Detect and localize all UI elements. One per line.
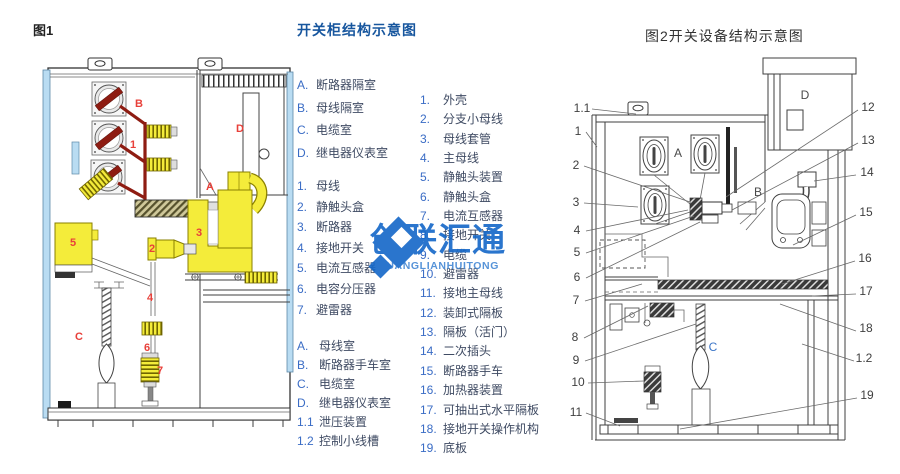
item-text: 控制小线槽: [319, 432, 379, 449]
item-marker: A.: [297, 339, 319, 353]
list-item: 5.电流互感器: [297, 259, 376, 280]
item-marker: B.: [297, 358, 319, 372]
list-item: B.母线隔室: [297, 99, 388, 122]
coil-end-cap: [171, 160, 177, 169]
fig2-cable-assembly: [610, 300, 814, 425]
item-text: 断路器隔室: [316, 76, 376, 93]
list-item: 3.断路器: [297, 218, 376, 239]
item-marker: 16.: [420, 383, 443, 397]
list-item: 18.接地开关操作机构: [420, 420, 539, 439]
list-item: 7.避雷器: [297, 301, 376, 322]
item-marker: C.: [297, 123, 316, 137]
fig2-label-room-a: A: [674, 146, 682, 160]
fig2-label-18: 18: [859, 321, 873, 335]
list-item: 17.可抽出式水平隔板: [420, 401, 539, 420]
item-marker: 4.: [420, 151, 443, 165]
fig2-label-13: 13: [861, 133, 875, 147]
item-marker: 5.: [297, 261, 316, 275]
fig2-label-12: 12: [861, 100, 875, 114]
coil-end-cap: [171, 127, 177, 136]
item-text: 隔板（活门）: [443, 323, 515, 340]
item-marker: 14.: [420, 344, 443, 358]
fig2-label-8: 8: [572, 330, 579, 344]
fig1-label-part-4: 4: [147, 292, 154, 304]
fig1-label-room-c: C: [75, 331, 83, 343]
fig2-label-1: 1: [575, 124, 582, 138]
fig2-left-internals: [600, 234, 668, 280]
fig2-label-1-1: 1.1: [574, 101, 591, 115]
list-item: 2.分支小母线: [420, 110, 539, 129]
list-item: 4.接地开关: [297, 239, 376, 260]
list-item: D.继电器仪表室: [297, 144, 388, 167]
fig2-label-room-d: D: [801, 88, 810, 102]
earthing-main-busbar: [614, 418, 638, 423]
list-item: 6.静触头盒: [420, 188, 539, 207]
item-marker: 15.: [420, 364, 443, 378]
item-marker: 18.: [420, 422, 443, 436]
item-text: 二次插头: [443, 342, 491, 359]
item-marker: 1.2: [297, 434, 319, 448]
page: 图1 开关柜结构示意图 图2开关设备结构示意图: [0, 0, 900, 474]
legend-compartments-list: A.断路器隔室 B.母线隔室 C.电缆室 D.继电器仪表室: [297, 76, 388, 166]
fig2-label-room-b: B: [754, 185, 762, 199]
item-marker: A.: [297, 78, 316, 92]
item-marker: 5.: [420, 170, 443, 184]
list-item: 16.加热器装置: [420, 381, 539, 400]
item-text: 静触头装置: [443, 168, 503, 185]
list-item: B.断路器手车室: [297, 356, 391, 375]
cable-rope: [696, 304, 705, 350]
side-panel-left: [43, 70, 50, 418]
list-item: 12.装卸式隔板: [420, 304, 539, 323]
list-item: 4.主母线: [420, 149, 539, 168]
fig1-label-room-d: D: [236, 123, 244, 135]
watermark: 创联汇通 CHUANGLIANHUITONG: [366, 220, 566, 292]
item-text: 断路器手车室: [319, 356, 391, 373]
item-marker: 17.: [420, 403, 443, 417]
breaker-column: [218, 190, 252, 248]
item-text: 静触头盒: [316, 198, 364, 215]
legend-parts-list: 1.母线 2.静触头盒 3.断路器 4.接地开关 5.电流互感器 6.电容分压器…: [297, 177, 376, 321]
fig2-label-5: 5: [574, 245, 581, 259]
fig2-leader-lines: [584, 109, 858, 429]
fig1-label-part-5: 5: [70, 237, 76, 249]
item-text: 外壳: [443, 91, 467, 108]
fig1-label-part-2: 2: [149, 243, 155, 255]
fig2-busbar-insulator: [641, 186, 669, 224]
item-marker: 4.: [297, 241, 316, 255]
item-marker: C.: [297, 377, 319, 391]
item-marker: 6.: [297, 282, 316, 296]
fig1-bushing-insulator: [92, 82, 126, 116]
item-text: 加热器装置: [443, 381, 503, 398]
side-panel-right: [287, 72, 293, 372]
fig2-label-6: 6: [574, 270, 581, 284]
list-item: 15.断路器手车: [420, 362, 539, 381]
item-marker: D.: [297, 396, 319, 410]
item-text: 接地开关: [316, 239, 364, 256]
fig2-heater-strip: [605, 280, 838, 300]
fig2-base: [595, 425, 845, 440]
fig2-label-11: 11: [570, 405, 583, 419]
item-text: 分支小母线: [443, 110, 503, 127]
fig1-bushing-insulator: [92, 121, 126, 155]
fig2-label-1-2: 1.2: [856, 351, 873, 365]
arrester: [644, 372, 661, 392]
item-marker: 2.: [420, 112, 443, 126]
item-text: 可抽出式水平隔板: [443, 401, 539, 418]
item-marker: 19.: [420, 441, 443, 455]
item-marker: 3.: [420, 132, 443, 146]
fig2-label-2: 2: [573, 158, 580, 172]
fig1-label-part-7: 7: [157, 365, 163, 377]
lifting-lug: [198, 58, 222, 70]
item-text: 装卸式隔板: [443, 304, 503, 321]
fig2-label-3: 3: [573, 195, 580, 209]
item-text: 断路器手车: [443, 362, 503, 379]
list-item: 1.2控制小线槽: [297, 432, 391, 451]
item-text: 泄压装置: [319, 413, 367, 430]
item-marker: 1.: [420, 93, 443, 107]
fig1-label-part-1: 1: [130, 139, 136, 151]
item-marker: 12.: [420, 306, 443, 320]
figure1-caption: 图1: [33, 20, 53, 39]
cable-termination: [692, 346, 709, 389]
item-text: 母线室: [319, 337, 355, 354]
figure2-diagram: 1.1 1 2 3 4 5 6 7 8 9 10 11 12 13 14 15 …: [550, 52, 900, 462]
item-text: 断路器: [316, 218, 352, 235]
list-item: 1.1泄压装置: [297, 413, 391, 432]
branch-bushing-coil: [147, 125, 171, 138]
cable-rope: [102, 288, 111, 346]
fig2-busbar-insulator: [691, 135, 719, 173]
item-marker: D.: [297, 146, 316, 160]
heater-coil: [245, 272, 277, 283]
item-text: 避雷器: [316, 301, 352, 318]
fig1-label-room-a: A: [206, 181, 214, 193]
list-item: 3.母线套管: [420, 130, 539, 149]
fig2-label-room-c: C: [709, 340, 718, 354]
item-marker: 7.: [297, 303, 316, 317]
fig2-earthing-switch: [644, 303, 684, 326]
item-marker: 2.: [297, 200, 316, 214]
list-item: 2.静触头盒: [297, 198, 376, 219]
item-marker: B.: [297, 101, 316, 115]
list-item: A.断路器隔室: [297, 76, 388, 99]
lifting-lug: [88, 58, 112, 70]
legend-title: 开关柜结构示意图: [297, 20, 417, 40]
figure1-diagram: B 1 D A 5 2 3 4 C 6 7: [38, 50, 300, 445]
figure2-caption: 图2开关设备结构示意图: [645, 26, 804, 46]
item-marker: 13.: [420, 325, 443, 339]
list-item: D.继电器仪表室: [297, 394, 391, 413]
list-item: 14.二次插头: [420, 342, 539, 361]
list-item: A.母线室: [297, 337, 391, 356]
fig2-label-9: 9: [573, 353, 580, 367]
divider-coil: [142, 322, 162, 335]
fig2-label-10: 10: [571, 375, 585, 389]
item-text: 主母线: [443, 149, 479, 166]
list-item: 19.底板: [420, 439, 539, 458]
contact-body: [156, 240, 174, 258]
item-text: 继电器仪表室: [319, 394, 391, 411]
item-text: 母线: [316, 177, 340, 194]
item-text: 母线套管: [443, 130, 491, 147]
item-text: 接地开关操作机构: [443, 420, 539, 437]
fig1-label-part-3: 3: [196, 227, 202, 239]
list-item: 1.母线: [297, 177, 376, 198]
fig2-label-17: 17: [859, 284, 873, 298]
list-item: C.电缆室: [297, 375, 391, 394]
fig2-label-19: 19: [860, 388, 874, 402]
fig2-label-15: 15: [859, 205, 873, 219]
item-text: 继电器仪表室: [316, 144, 388, 161]
watermark-logo-icon: [366, 220, 426, 286]
fig2-busbar-insulator: [640, 137, 668, 175]
list-item: 5.静触头装置: [420, 168, 539, 187]
fig2-relay-box: [763, 58, 856, 150]
item-text: 电缆室: [319, 375, 355, 392]
fig1-label-room-b: B: [135, 98, 143, 110]
fig2-label-4: 4: [574, 223, 581, 237]
item-text: 静触头盒: [443, 188, 491, 205]
item-marker: 1.1: [297, 415, 319, 429]
fig2-label-16: 16: [858, 251, 872, 265]
item-text: 底板: [443, 439, 467, 456]
item-text: 母线隔室: [316, 99, 364, 116]
list-item: 13.隔板（活门）: [420, 323, 539, 342]
item-text: 电缆室: [316, 121, 352, 138]
item-marker: 3.: [297, 220, 316, 234]
list-item: 1.外壳: [420, 91, 539, 110]
fig1-label-part-6: 6: [144, 342, 150, 354]
legend-rooms-list: A.母线室 B.断路器手车室 C.电缆室 D.继电器仪表室 1.1泄压装置 1.…: [297, 337, 391, 451]
secondary-plug: [798, 172, 816, 187]
item-marker: 1.: [297, 179, 316, 193]
item-marker: 6.: [420, 190, 443, 204]
fig2-label-7: 7: [573, 293, 580, 307]
list-item: C.电缆室: [297, 121, 388, 144]
fig2-label-14: 14: [860, 165, 874, 179]
branch-bushing-coil: [147, 158, 171, 171]
list-item: 6.电容分压器: [297, 280, 376, 301]
